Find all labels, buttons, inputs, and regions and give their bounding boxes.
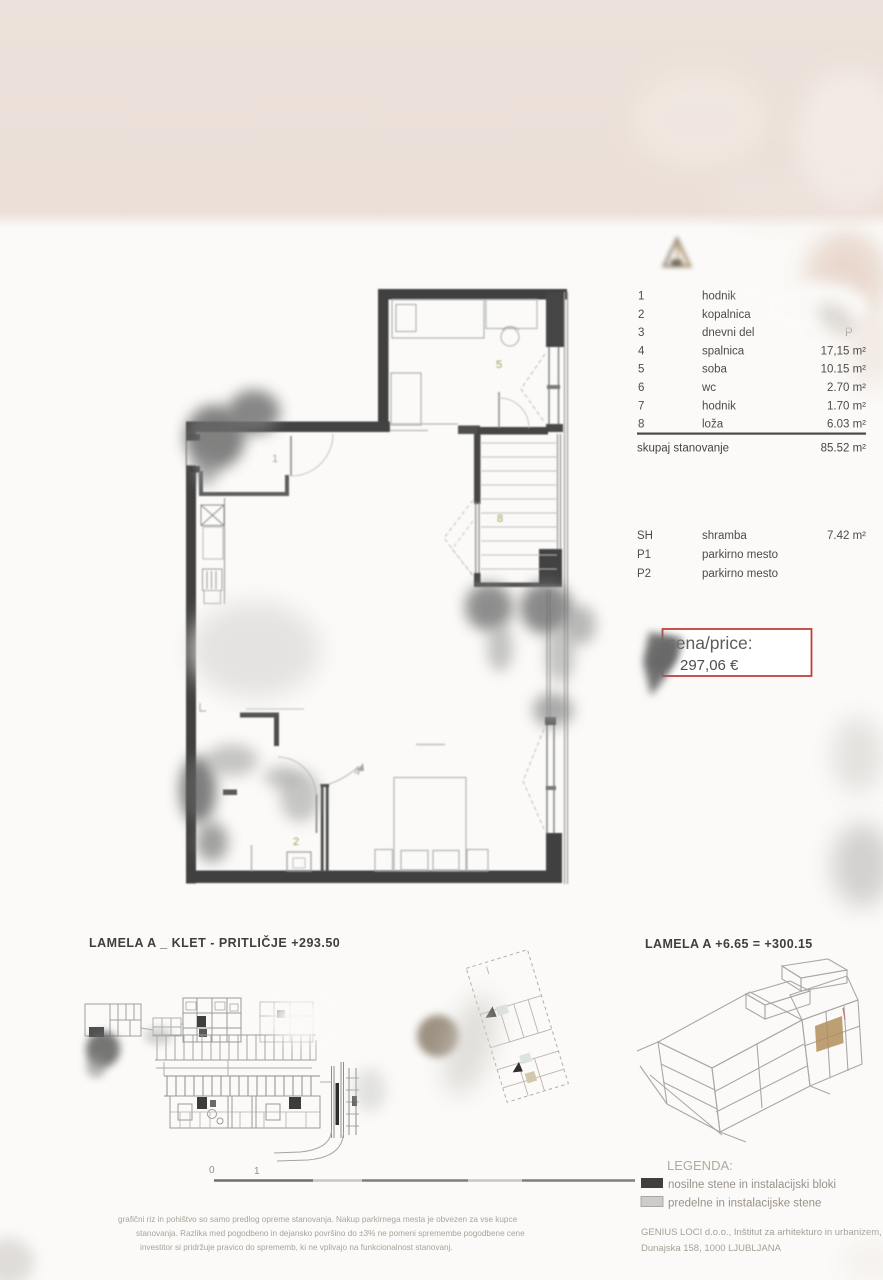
- svg-text:wc: wc: [701, 382, 716, 394]
- svg-text:P2: P2: [637, 568, 651, 580]
- svg-text:2: 2: [293, 836, 299, 848]
- svg-text:1.70 m²: 1.70 m²: [827, 400, 866, 412]
- svg-text:LEGENDA:: LEGENDA:: [667, 1158, 733, 1173]
- svg-text:5: 5: [638, 364, 644, 376]
- svg-text:predelne in instalacijske sten: predelne in instalacijske stene: [668, 1198, 821, 1210]
- svg-text:17,15 m²: 17,15 m²: [821, 345, 867, 357]
- svg-text:hodnik: hodnik: [702, 291, 736, 303]
- svg-text:1: 1: [272, 453, 278, 465]
- svg-text:Dunajska 158, 1000 LJUBLJANA: Dunajska 158, 1000 LJUBLJANA: [641, 1243, 782, 1254]
- svg-text:0: 0: [209, 1165, 215, 1176]
- svg-text:6.03 m²: 6.03 m²: [827, 419, 866, 431]
- svg-text:loža: loža: [702, 419, 724, 431]
- svg-text:2.70 m²: 2.70 m²: [827, 382, 866, 394]
- svg-text:dnevni del: dnevni del: [702, 327, 754, 339]
- svg-text:7: 7: [638, 400, 644, 412]
- svg-text:LAMELA A _ KLET - PRITLIČJE +2: LAMELA A _ KLET - PRITLIČJE +293.50: [89, 935, 340, 950]
- svg-text:297,06 €: 297,06 €: [680, 657, 739, 674]
- svg-text:grafični riz in pohištvo so sa: grafični riz in pohištvo so samo predlog…: [118, 1215, 518, 1224]
- svg-text:85.52 m²: 85.52 m²: [821, 443, 867, 455]
- svg-text:hodnik: hodnik: [702, 400, 736, 412]
- svg-text:3: 3: [638, 327, 644, 339]
- svg-text:spalnica: spalnica: [702, 345, 745, 357]
- svg-text:8: 8: [638, 419, 644, 431]
- svg-text:7.42 m²: 7.42 m²: [827, 530, 866, 542]
- svg-text:investitor si pridržuje pravic: investitor si pridržuje pravico do sprem…: [140, 1243, 453, 1252]
- svg-text:skupaj stanovanje: skupaj stanovanje: [637, 443, 729, 455]
- svg-text:1: 1: [254, 1166, 260, 1177]
- svg-text:2: 2: [638, 309, 644, 321]
- svg-text:6: 6: [638, 382, 644, 394]
- svg-text:P1: P1: [637, 549, 651, 561]
- svg-text:1: 1: [638, 291, 644, 303]
- svg-text:5: 5: [496, 359, 502, 371]
- svg-text:10.15 m²: 10.15 m²: [821, 364, 867, 376]
- svg-text:stanovanja. Razlika med pogodb: stanovanja. Razlika med pogodbeno in dej…: [136, 1229, 525, 1238]
- svg-text:4: 4: [354, 766, 360, 778]
- svg-text:4: 4: [638, 345, 645, 357]
- svg-text:nosilne stene in instalacijski: nosilne stene in instalacijski bloki: [668, 1179, 836, 1191]
- svg-text:soba: soba: [702, 364, 728, 376]
- svg-text:LAMELA A +6.65 = +300.15: LAMELA A +6.65 = +300.15: [645, 937, 813, 951]
- svg-text:parkirno mesto: parkirno mesto: [702, 568, 778, 580]
- svg-text:parkirno mesto: parkirno mesto: [702, 549, 778, 561]
- svg-text:8: 8: [497, 513, 503, 525]
- svg-text:shramba: shramba: [702, 530, 747, 542]
- svg-text:kopalnica: kopalnica: [702, 309, 751, 321]
- svg-text:GENIUS LOCI d.o.o., Inštitut z: GENIUS LOCI d.o.o., Inštitut za arhitekt…: [641, 1227, 882, 1238]
- svg-text:SH: SH: [637, 530, 653, 542]
